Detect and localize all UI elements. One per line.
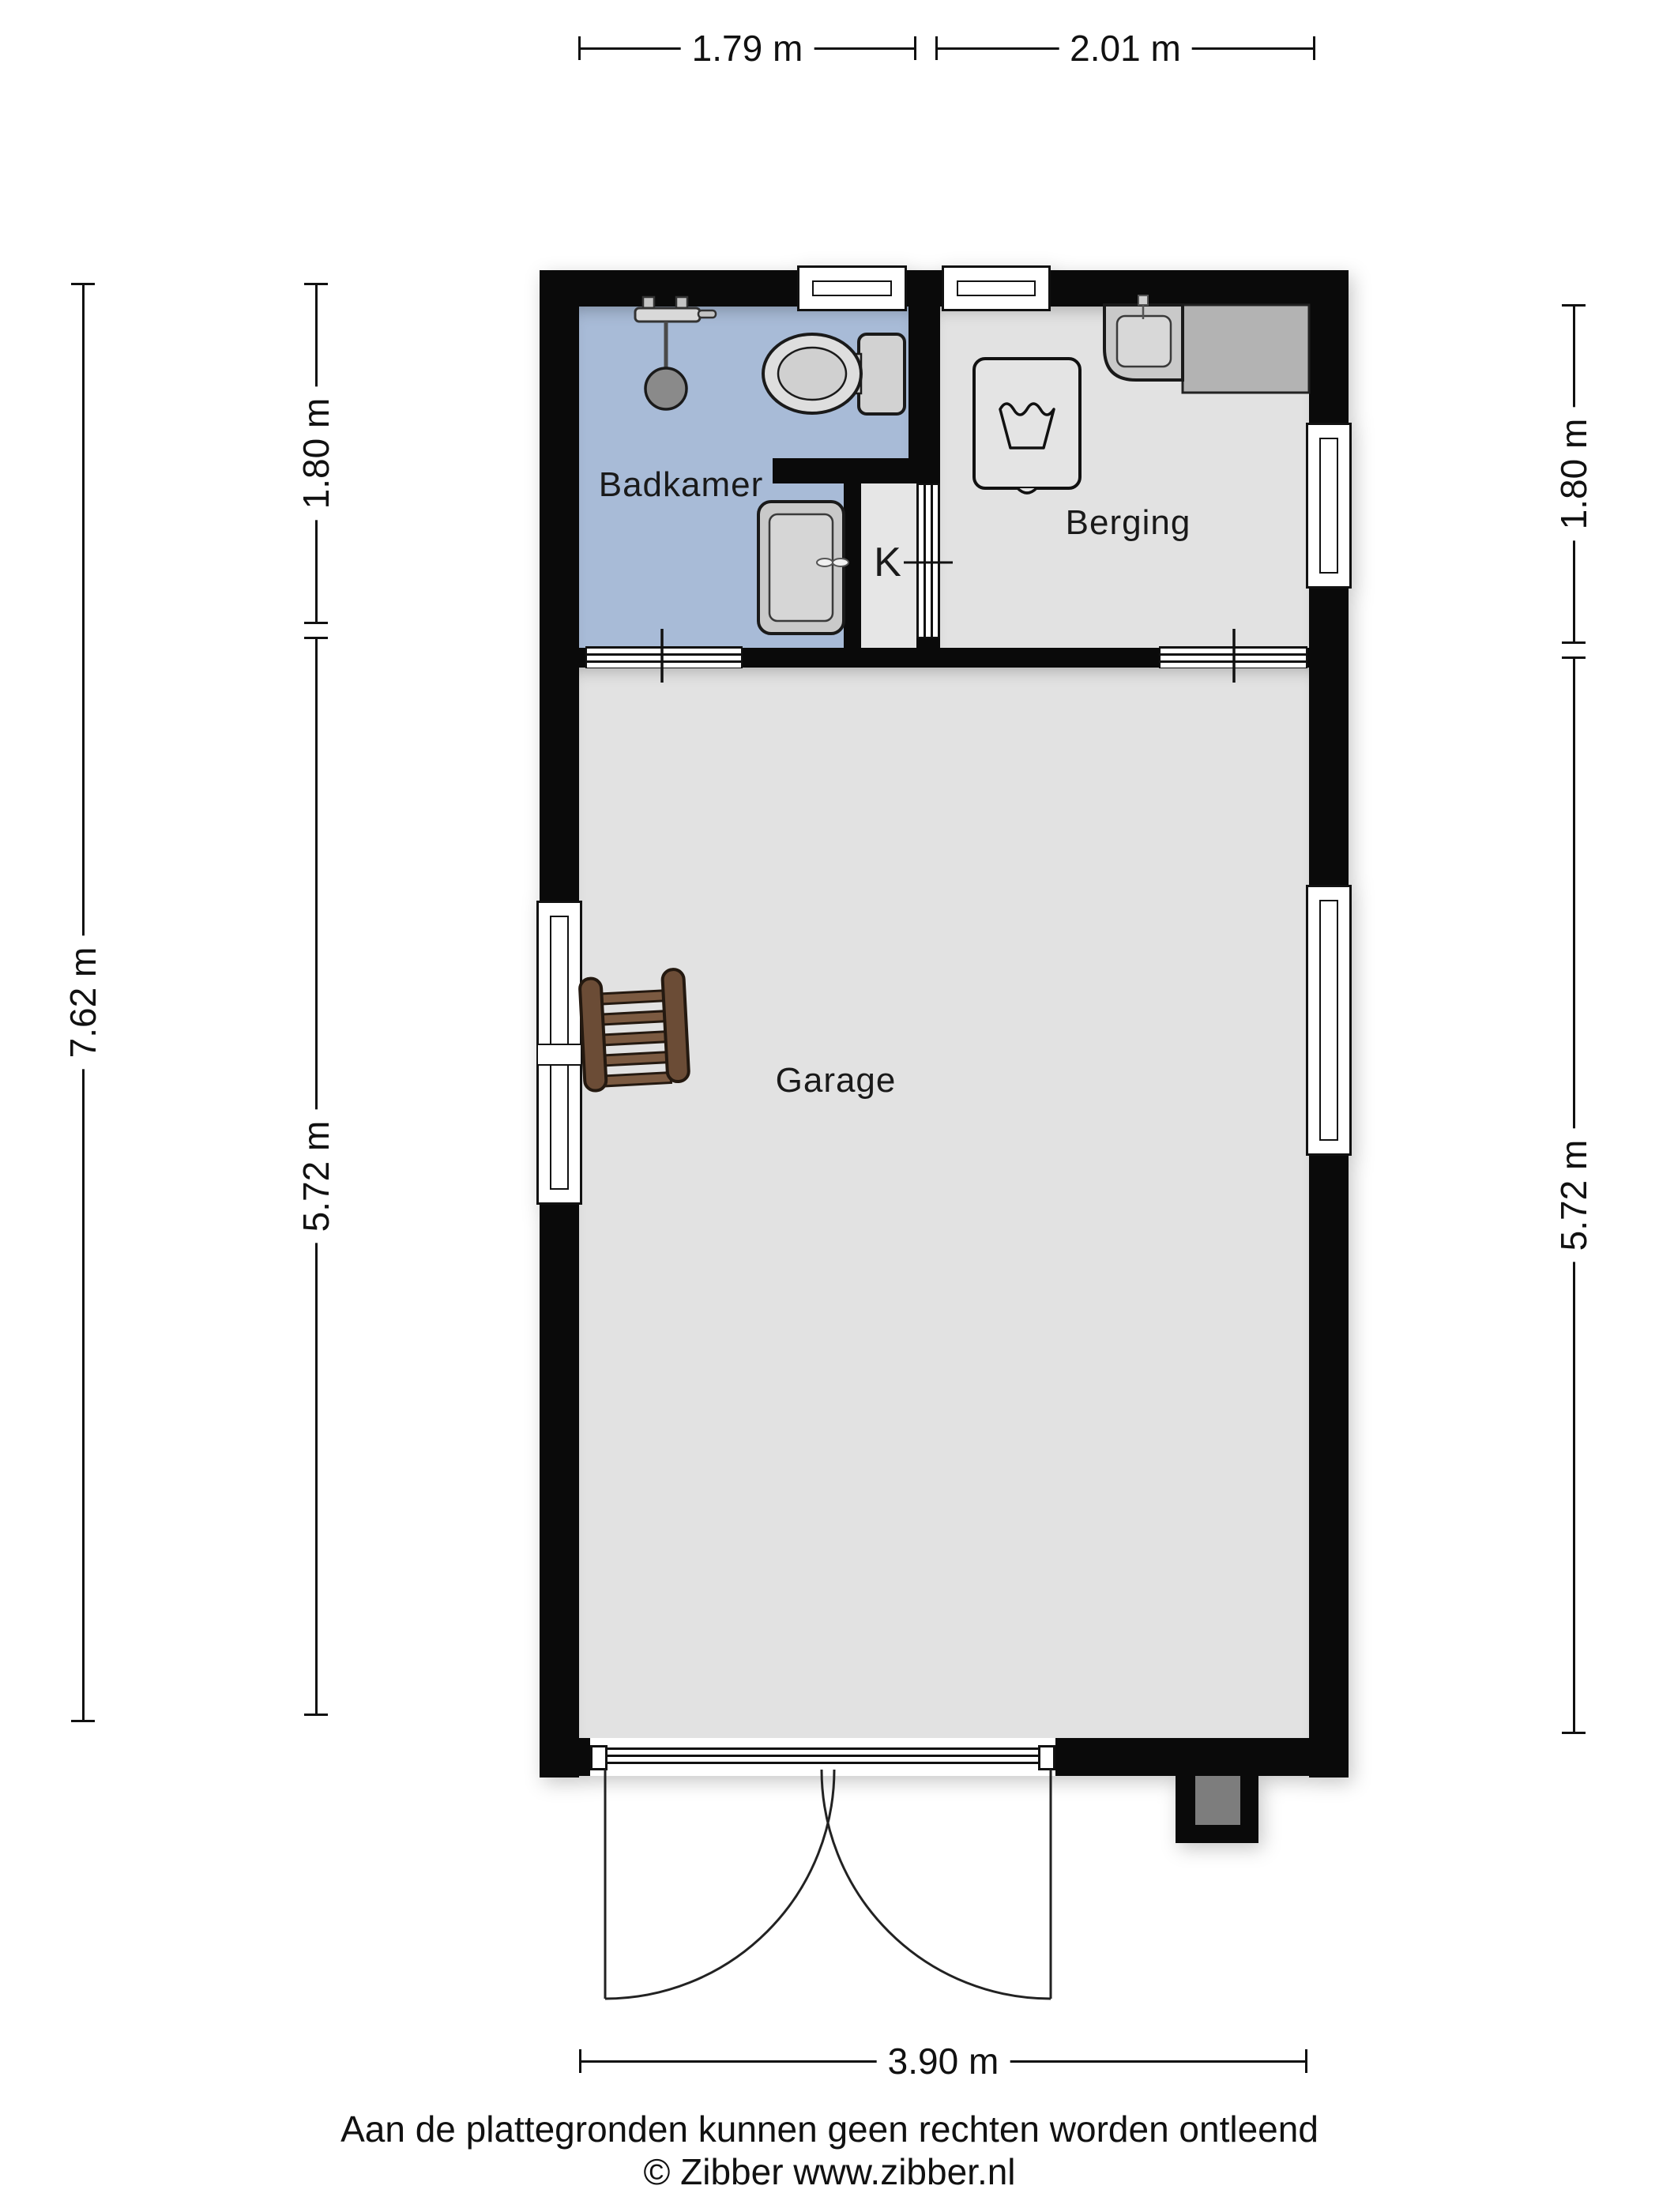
wall-bottom-right bbox=[1055, 1738, 1349, 1776]
window-glass bbox=[812, 280, 892, 297]
closet-label: K bbox=[874, 539, 902, 586]
wall-bottom-left bbox=[540, 1738, 590, 1776]
bathroom-label: Badkamer bbox=[599, 465, 764, 505]
storage-door-opening bbox=[1159, 646, 1307, 668]
window-glass bbox=[957, 280, 1036, 297]
window-right-storage bbox=[1306, 423, 1352, 589]
floorplan-page: 1.79 m 2.01 m 3.90 m 7.62 m 1.80 m 5.72 … bbox=[0, 0, 1659, 2212]
garage-door-post-left bbox=[590, 1745, 608, 1770]
wall-divider-left-bit bbox=[579, 648, 585, 668]
window-divider bbox=[538, 1044, 581, 1066]
window-left-garage bbox=[536, 901, 582, 1205]
garage-door-band bbox=[590, 1747, 1055, 1768]
garage-door-post-right bbox=[1038, 1745, 1055, 1770]
window-top-bathroom bbox=[797, 265, 907, 311]
chimney bbox=[1176, 1776, 1258, 1843]
disclaimer-text: Aan de plattegronden kunnen geen rechten… bbox=[0, 2108, 1659, 2150]
window-top-storage bbox=[942, 265, 1051, 311]
window-right-garage bbox=[1306, 885, 1352, 1156]
wall-closet-left bbox=[844, 477, 861, 668]
garage-floor bbox=[579, 668, 1309, 1738]
building bbox=[0, 0, 1659, 2212]
bathroom-door-opening bbox=[585, 646, 743, 668]
storage-label: Berging bbox=[1066, 503, 1191, 543]
chimney-flue bbox=[1195, 1776, 1240, 1825]
closet-door bbox=[916, 483, 940, 638]
wall-divider-main bbox=[743, 648, 1159, 668]
copyright-text: © Zibber www.zibber.nl bbox=[0, 2150, 1659, 2193]
garage-label: Garage bbox=[776, 1061, 897, 1100]
window-glass bbox=[1319, 900, 1339, 1141]
storage-floor bbox=[940, 307, 1309, 648]
window-glass bbox=[1319, 438, 1339, 574]
